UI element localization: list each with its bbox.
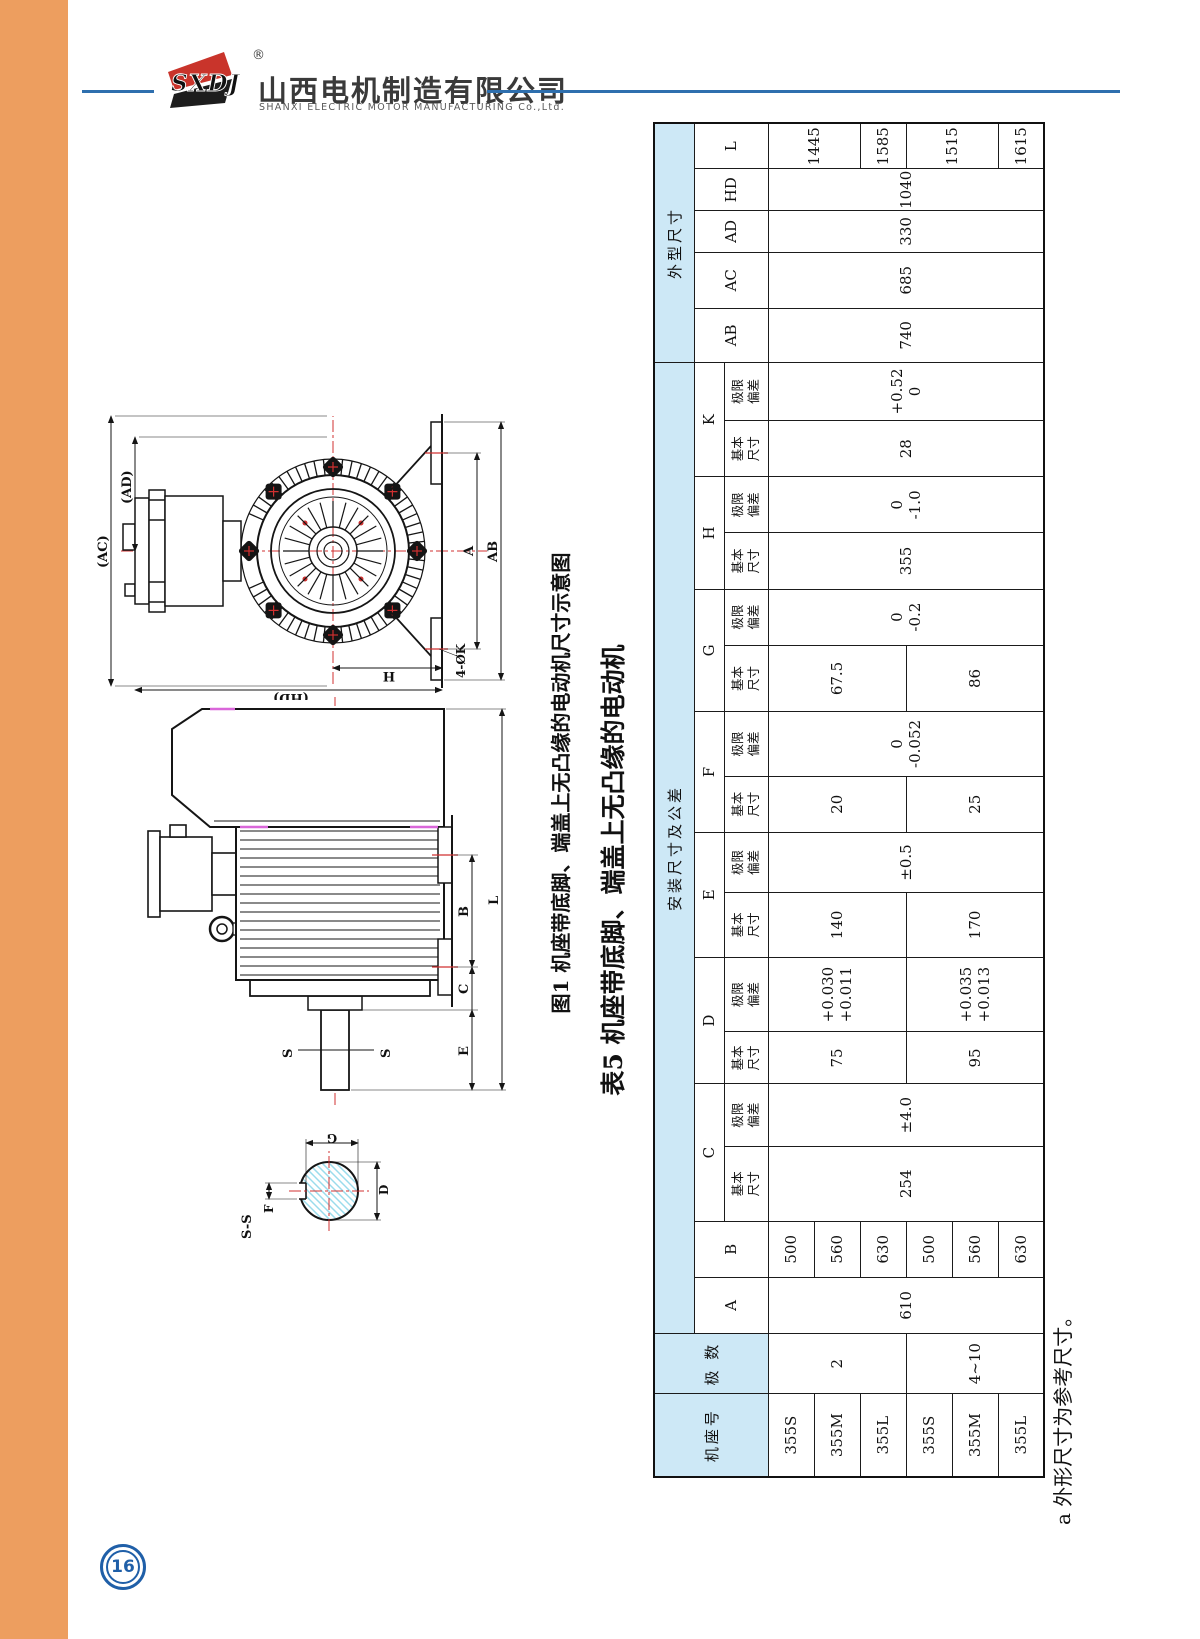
cell-D-basic: 95	[906, 1032, 1044, 1084]
cell-E-basic: 140	[768, 893, 906, 957]
dim-label-G: G	[327, 1131, 337, 1145]
subheader-dev: 极限偏差	[730, 604, 761, 631]
fan-cowl	[172, 709, 444, 827]
header-E: E	[694, 832, 724, 957]
subheader: 基本尺寸	[724, 776, 768, 832]
end-view-drawing: (AC) (AD) (HD) H A AB 4-ØK	[95, 405, 525, 700]
cell-B: 500	[768, 1221, 814, 1277]
cell-B: 500	[906, 1221, 952, 1277]
header-HD: HD	[694, 169, 768, 211]
cell-frame: 355M	[814, 1394, 860, 1477]
cell-G-basic: 86	[906, 645, 1044, 712]
tol-lower: +0.011	[837, 958, 855, 1032]
header-frame: 机座号	[654, 1394, 768, 1477]
dim-label-H: H	[383, 668, 395, 683]
cell-F-basic: 20	[768, 776, 906, 832]
subheader-basic: 基本尺寸	[730, 548, 761, 575]
tol-upper: +0.035	[957, 958, 975, 1032]
end-view-svg: (AC) (AD) (HD) H A AB 4-ØK	[95, 405, 525, 700]
cell-poles: 4~10	[906, 1334, 1044, 1394]
dim-label-AC: (AC)	[96, 535, 111, 568]
cell-K-basic: 28	[768, 421, 1044, 477]
cell-D-dev: +0.035 +0.013	[906, 957, 1044, 1032]
page-number-badge: 16	[100, 1544, 146, 1590]
header-B: B	[694, 1221, 768, 1277]
section-title: S-S	[240, 1214, 255, 1239]
cell-frame: 355S	[768, 1394, 814, 1477]
cell-L: 1615	[998, 123, 1044, 169]
subheader: 极限偏差	[724, 712, 768, 776]
subheader-dev: 极限偏差	[730, 491, 761, 518]
subheader: 极限偏差	[724, 1084, 768, 1146]
table-caption: 表5 机座带底脚、端盖上无凸缘的电动机	[598, 606, 630, 1134]
subheader-basic: 基本尺寸	[730, 1045, 761, 1072]
cell-AB: 740	[768, 308, 1044, 362]
dim-label-4-phiK: 4-ØK	[454, 643, 468, 678]
tol-upper: 0	[888, 590, 906, 645]
header-A: A	[694, 1277, 768, 1333]
tol-lower: -1.0	[906, 477, 924, 532]
table-row: 355S 2 610 500 254 ±4.0 75 +0.030 +0.011…	[768, 123, 814, 1477]
cell-E-dev: ±0.5	[768, 832, 1044, 892]
subheader-basic: 基本尺寸	[730, 1170, 761, 1197]
tol-lower: +0.013	[975, 958, 993, 1032]
cell-H-dev: 0 -1.0	[768, 477, 1044, 533]
cell-frame: 355M	[952, 1394, 998, 1477]
subheader-dev: 极限偏差	[730, 378, 761, 405]
motor-body-side	[236, 827, 444, 1090]
subheader: 极限偏差	[724, 477, 768, 533]
tol-lower: -0.2	[906, 590, 924, 645]
header-poles: 极 数	[654, 1334, 768, 1394]
tol-upper: +0.52	[888, 363, 906, 420]
page-number: 16	[106, 1550, 140, 1584]
cell-F-dev: 0 -0.052	[768, 712, 1044, 776]
page-edge-stripe	[0, 0, 68, 1639]
dim-label-AD: (AD)	[120, 470, 135, 504]
terminal-box	[123, 490, 241, 612]
cell-AC: 685	[768, 252, 1044, 308]
dim-label-A: A	[462, 545, 477, 557]
logo-text: SXDJ	[171, 70, 241, 97]
cell-L: 1515	[906, 123, 998, 169]
figure-caption: 图1 机座带底脚、端盖上无凸缘的电动机尺寸示意图	[544, 528, 578, 1038]
cell-C-basic: 254	[768, 1146, 1044, 1221]
subheader: 基本尺寸	[724, 893, 768, 957]
tol-lower: -0.052	[906, 712, 924, 775]
dim-label-D: D	[377, 1185, 390, 1195]
header-outline-group: 外型尺寸	[654, 123, 694, 362]
header-rule-right	[487, 90, 1120, 93]
header-L: L	[694, 123, 768, 169]
header-AD: AD	[694, 211, 768, 253]
cell-AD: 330	[768, 211, 1044, 253]
cell-frame: 355L	[860, 1394, 906, 1477]
header-install-group: 安装尺寸及公差	[654, 362, 694, 1333]
section-dimensions	[265, 1139, 381, 1220]
subheader: 基本尺寸	[724, 533, 768, 589]
cell-C-dev: ±4.0	[768, 1084, 1044, 1146]
cell-B: 630	[998, 1221, 1044, 1277]
header-AC: AC	[694, 252, 768, 308]
table-row: 机座号 极 数 安装尺寸及公差 外型尺寸	[654, 123, 694, 1477]
subheader: 极限偏差	[724, 589, 768, 645]
section-label-S-top: S	[281, 1049, 296, 1058]
dim-label-B: B	[457, 906, 472, 917]
table-row: A B C D E F G H K AB AC AD HD L	[694, 123, 724, 1477]
header-AB: AB	[694, 308, 768, 362]
cell-HD: 1040	[768, 169, 1044, 211]
cell-D-basic: 75	[768, 1032, 906, 1084]
table-footnote: a 外形尺寸为参考尺寸。	[1048, 1235, 1078, 1525]
section-label-S-bottom: S	[379, 1049, 394, 1058]
dim-label-F: F	[262, 1204, 276, 1213]
cell-L: 1445	[768, 123, 860, 169]
header-C: C	[694, 1084, 724, 1221]
cell-B: 630	[860, 1221, 906, 1277]
cell-frame: 355L	[998, 1394, 1044, 1477]
cell-G-basic: 67.5	[768, 645, 906, 712]
header-D: D	[694, 957, 724, 1084]
subheader-dev: 极限偏差	[730, 1102, 761, 1129]
terminal-box-side	[148, 825, 236, 917]
company-logo-icon: SXDJ	[160, 48, 248, 114]
cell-A: 610	[768, 1277, 1044, 1333]
subheader-dev: 极限偏差	[730, 849, 761, 876]
subheader-dev: 极限偏差	[730, 981, 761, 1008]
header-G: G	[694, 589, 724, 712]
cell-G-dev: 0 -0.2	[768, 589, 1044, 645]
subheader: 基本尺寸	[724, 421, 768, 477]
dim-label-E: E	[457, 1046, 472, 1056]
spec-table-wrap: 机座号 极 数 安装尺寸及公差 外型尺寸 A B C D E F G H K A…	[653, 122, 1043, 1478]
cell-K-dev: +0.52 0	[768, 362, 1044, 420]
registered-mark: ®	[252, 48, 265, 63]
cell-poles: 2	[768, 1334, 906, 1394]
subheader: 极限偏差	[724, 362, 768, 420]
subheader-dev: 极限偏差	[730, 731, 761, 758]
cell-frame: 355S	[906, 1394, 952, 1477]
dim-label-C: C	[457, 984, 472, 994]
subheader-basic: 基本尺寸	[730, 665, 761, 692]
subheader: 基本尺寸	[724, 1146, 768, 1221]
subheader: 极限偏差	[724, 957, 768, 1032]
shaft-section-svg: S-S F G D	[235, 1130, 390, 1245]
cell-E-basic: 170	[906, 893, 1044, 957]
cell-B: 560	[814, 1221, 860, 1277]
subheader: 基本尺寸	[724, 1032, 768, 1084]
header-K: K	[694, 362, 724, 476]
tol-upper: +0.030	[819, 958, 837, 1032]
cell-H-basic: 355	[768, 533, 1044, 589]
catalog-page: { "page": {"number": "16"}, "header": { …	[0, 0, 1200, 1639]
subheader-basic: 基本尺寸	[730, 791, 761, 818]
cell-L: 1585	[860, 123, 906, 169]
company-name-en: SHANXI ELECTRIC MOTOR MANUFACTURING Co.,…	[259, 102, 565, 113]
header-H: H	[694, 477, 724, 589]
header-rule-left	[82, 90, 154, 93]
tol-upper: 0	[888, 477, 906, 532]
tol-lower: 0	[906, 363, 924, 420]
header-F: F	[694, 712, 724, 833]
cell-F-basic: 25	[906, 776, 1044, 832]
shaft-section-drawing: S-S F G D	[235, 1130, 390, 1245]
cell-B: 560	[952, 1221, 998, 1277]
subheader-basic: 基本尺寸	[730, 911, 761, 938]
subheader: 极限偏差	[724, 832, 768, 892]
dim-label-L: L	[487, 896, 502, 905]
spec-table: 机座号 极 数 安装尺寸及公差 外型尺寸 A B C D E F G H K A…	[653, 122, 1045, 1478]
dim-label-AB: AB	[486, 541, 501, 563]
subheader-basic: 基本尺寸	[730, 435, 761, 462]
cell-D-dev: +0.030 +0.011	[768, 957, 906, 1032]
subheader: 基本尺寸	[724, 645, 768, 712]
tol-upper: 0	[888, 712, 906, 775]
